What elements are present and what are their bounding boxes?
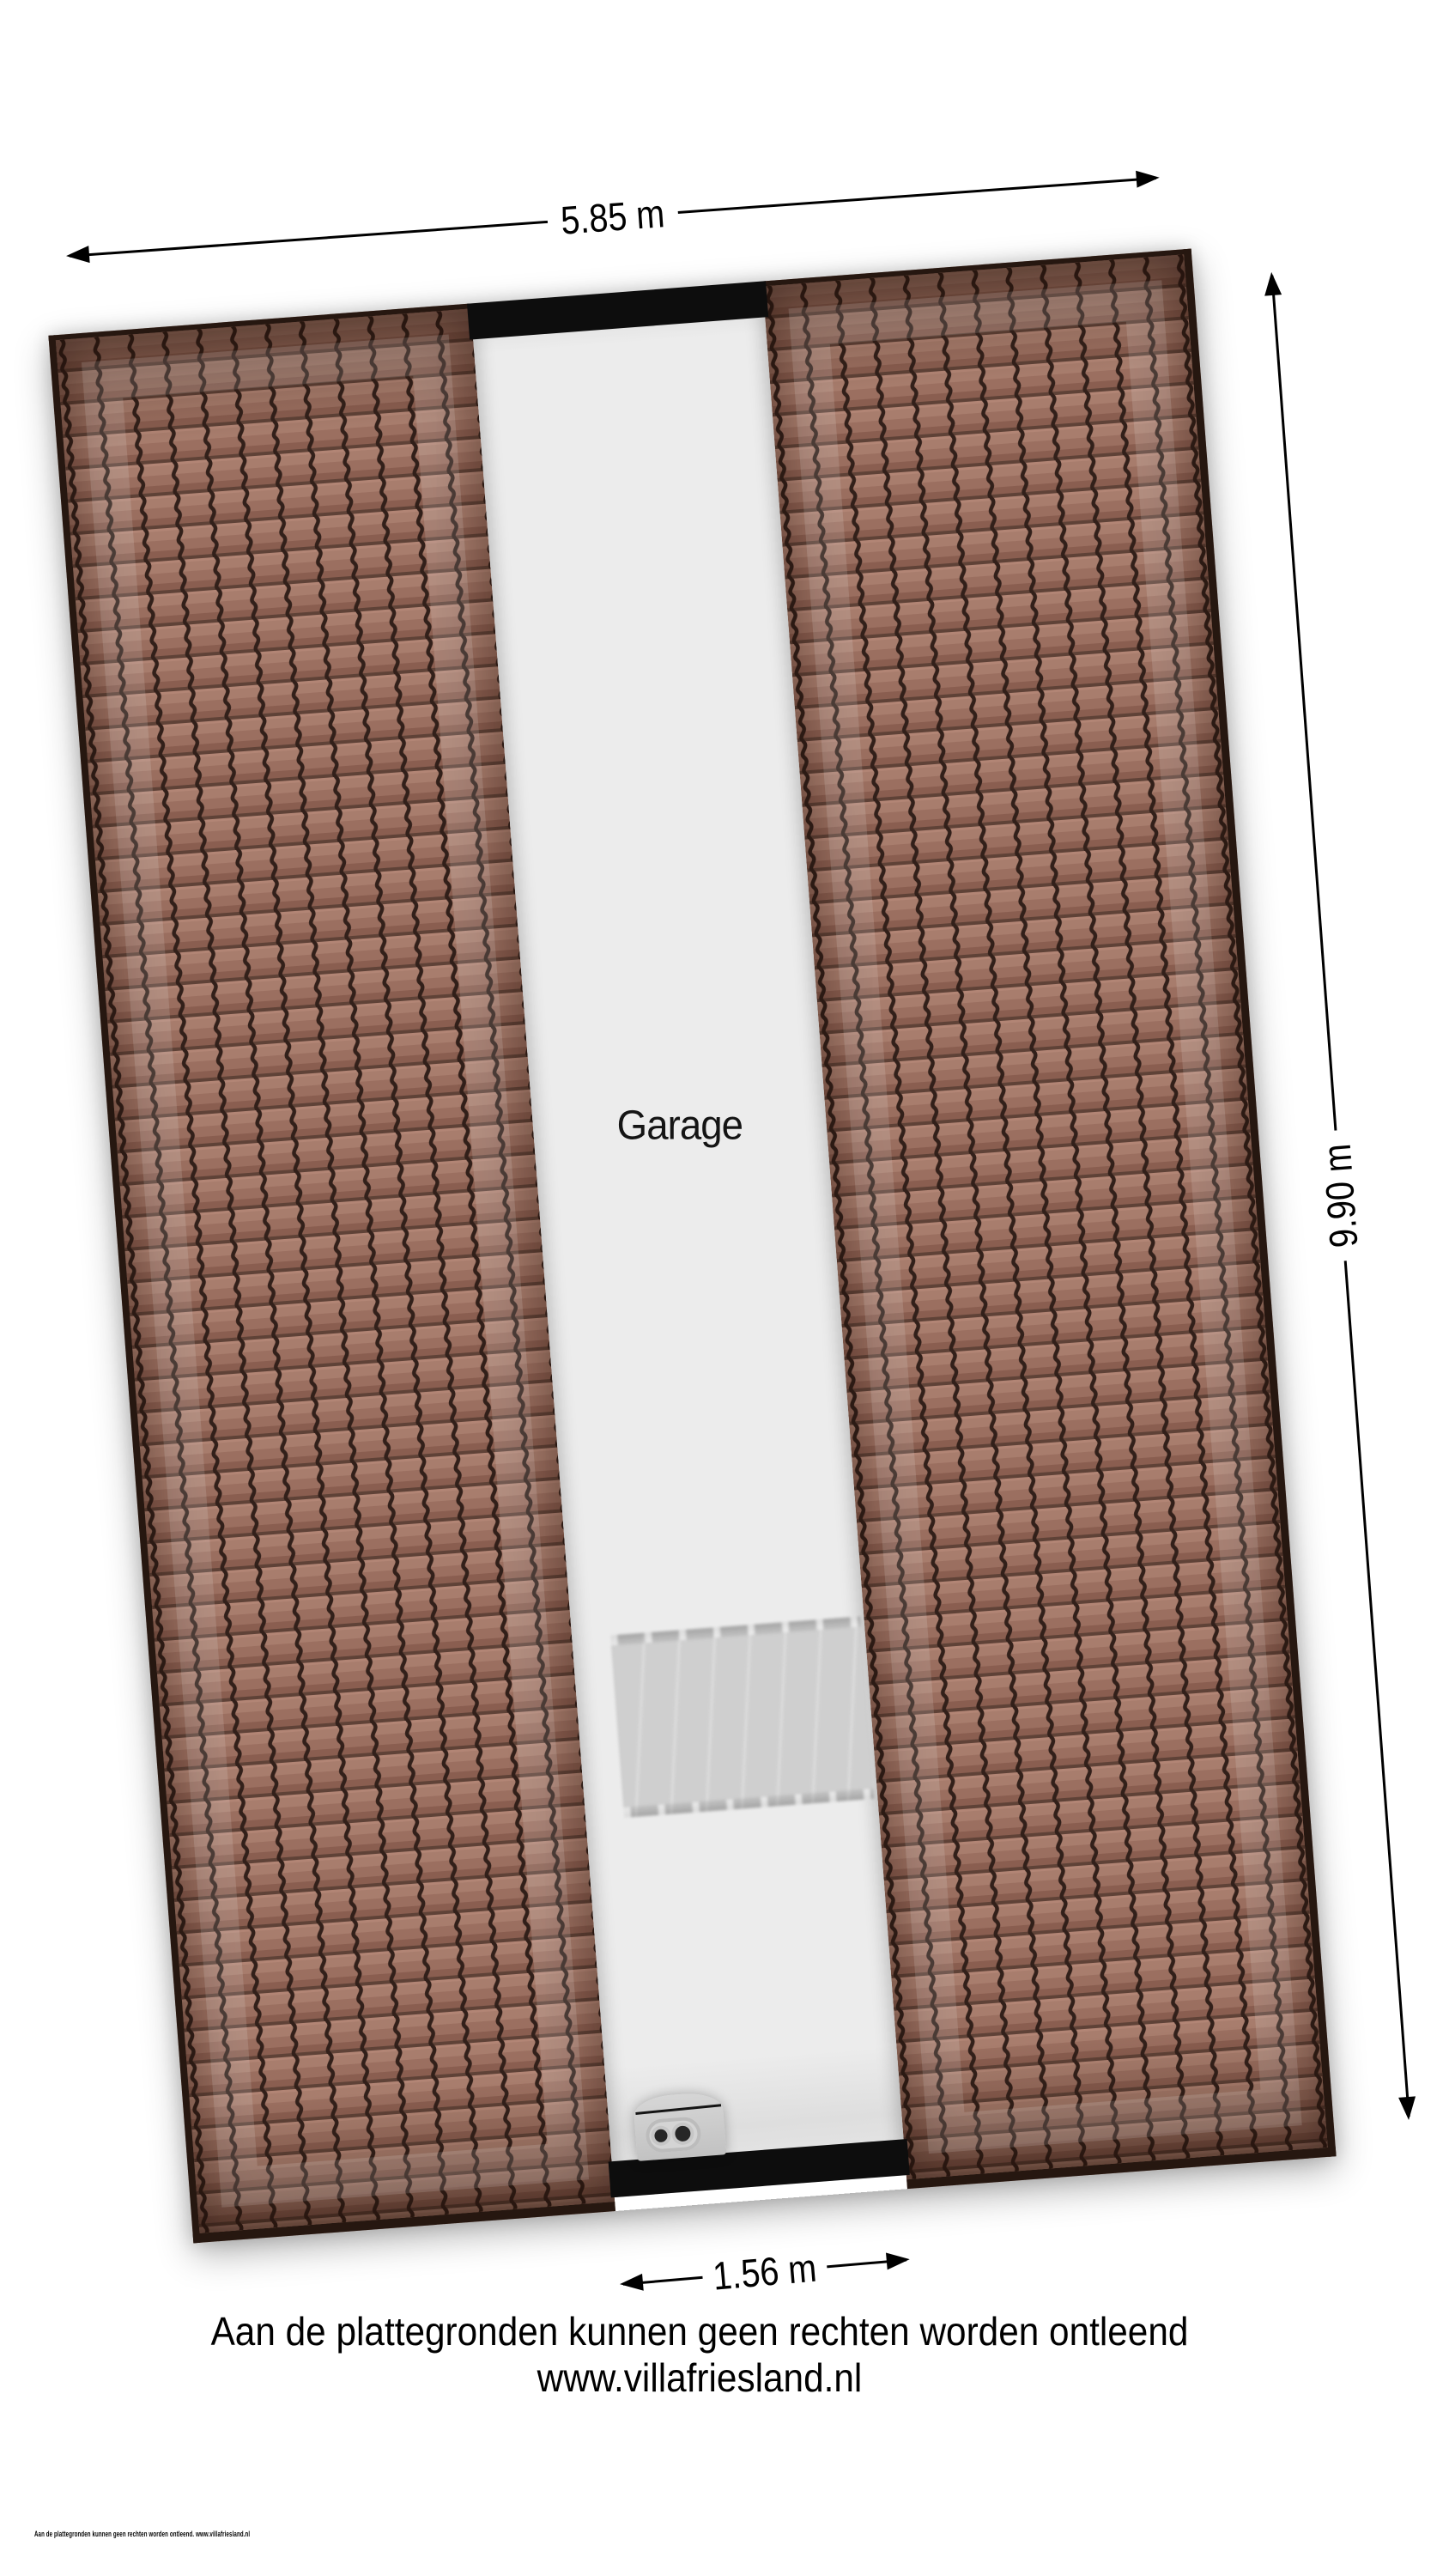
floor-plan: Garage [48,249,1336,2244]
arrowhead-left-icon [619,2274,644,2293]
arrowhead-left-icon [65,246,89,264]
boiler-burner-plate [645,2116,702,2154]
dimension-label: 9.90 m [1316,1130,1365,1263]
boiler-unit [633,2091,726,2161]
arrowhead-right-icon [886,2251,911,2269]
room-label: Garage [541,1104,819,1149]
arrowhead-right-icon [1136,169,1160,188]
dimension-bottom: 1.56 m [621,2259,909,2284]
floor-plan-page: Garage 5.85 m 9.90 m 1.56 m Aan de platt… [0,0,1449,2576]
dimension-top: 5.85 m [67,178,1159,256]
arrowhead-up-icon [1263,271,1282,295]
disclaimer-text: Aan de plattegronden kunnen geen rechten… [56,2308,1343,2401]
disclaimer-line: Aan de plattegronden kunnen geen rechten… [56,2308,1343,2354]
boiler-cap-line [635,2104,721,2115]
dimension-label: 5.85 m [546,192,679,241]
staircase [610,1616,874,1818]
boiler-knob-left-icon [654,2129,668,2142]
boiler-knob-right-icon [675,2125,691,2142]
fine-print: Aan de plattegronden kunnen geen rechten… [34,2530,250,2538]
arrowhead-down-icon [1398,2096,1417,2120]
website-url: www.villafriesland.nl [56,2354,1343,2401]
dimension-label: 1.56 m [701,2246,828,2296]
